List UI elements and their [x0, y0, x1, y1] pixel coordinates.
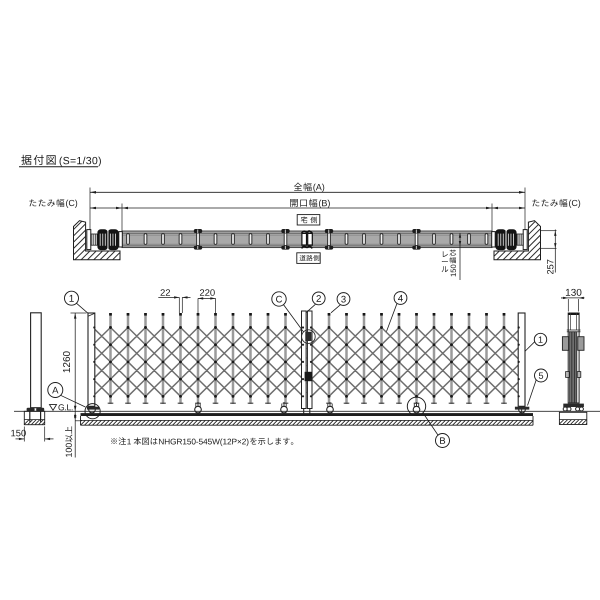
svg-text:1260: 1260	[62, 350, 73, 373]
